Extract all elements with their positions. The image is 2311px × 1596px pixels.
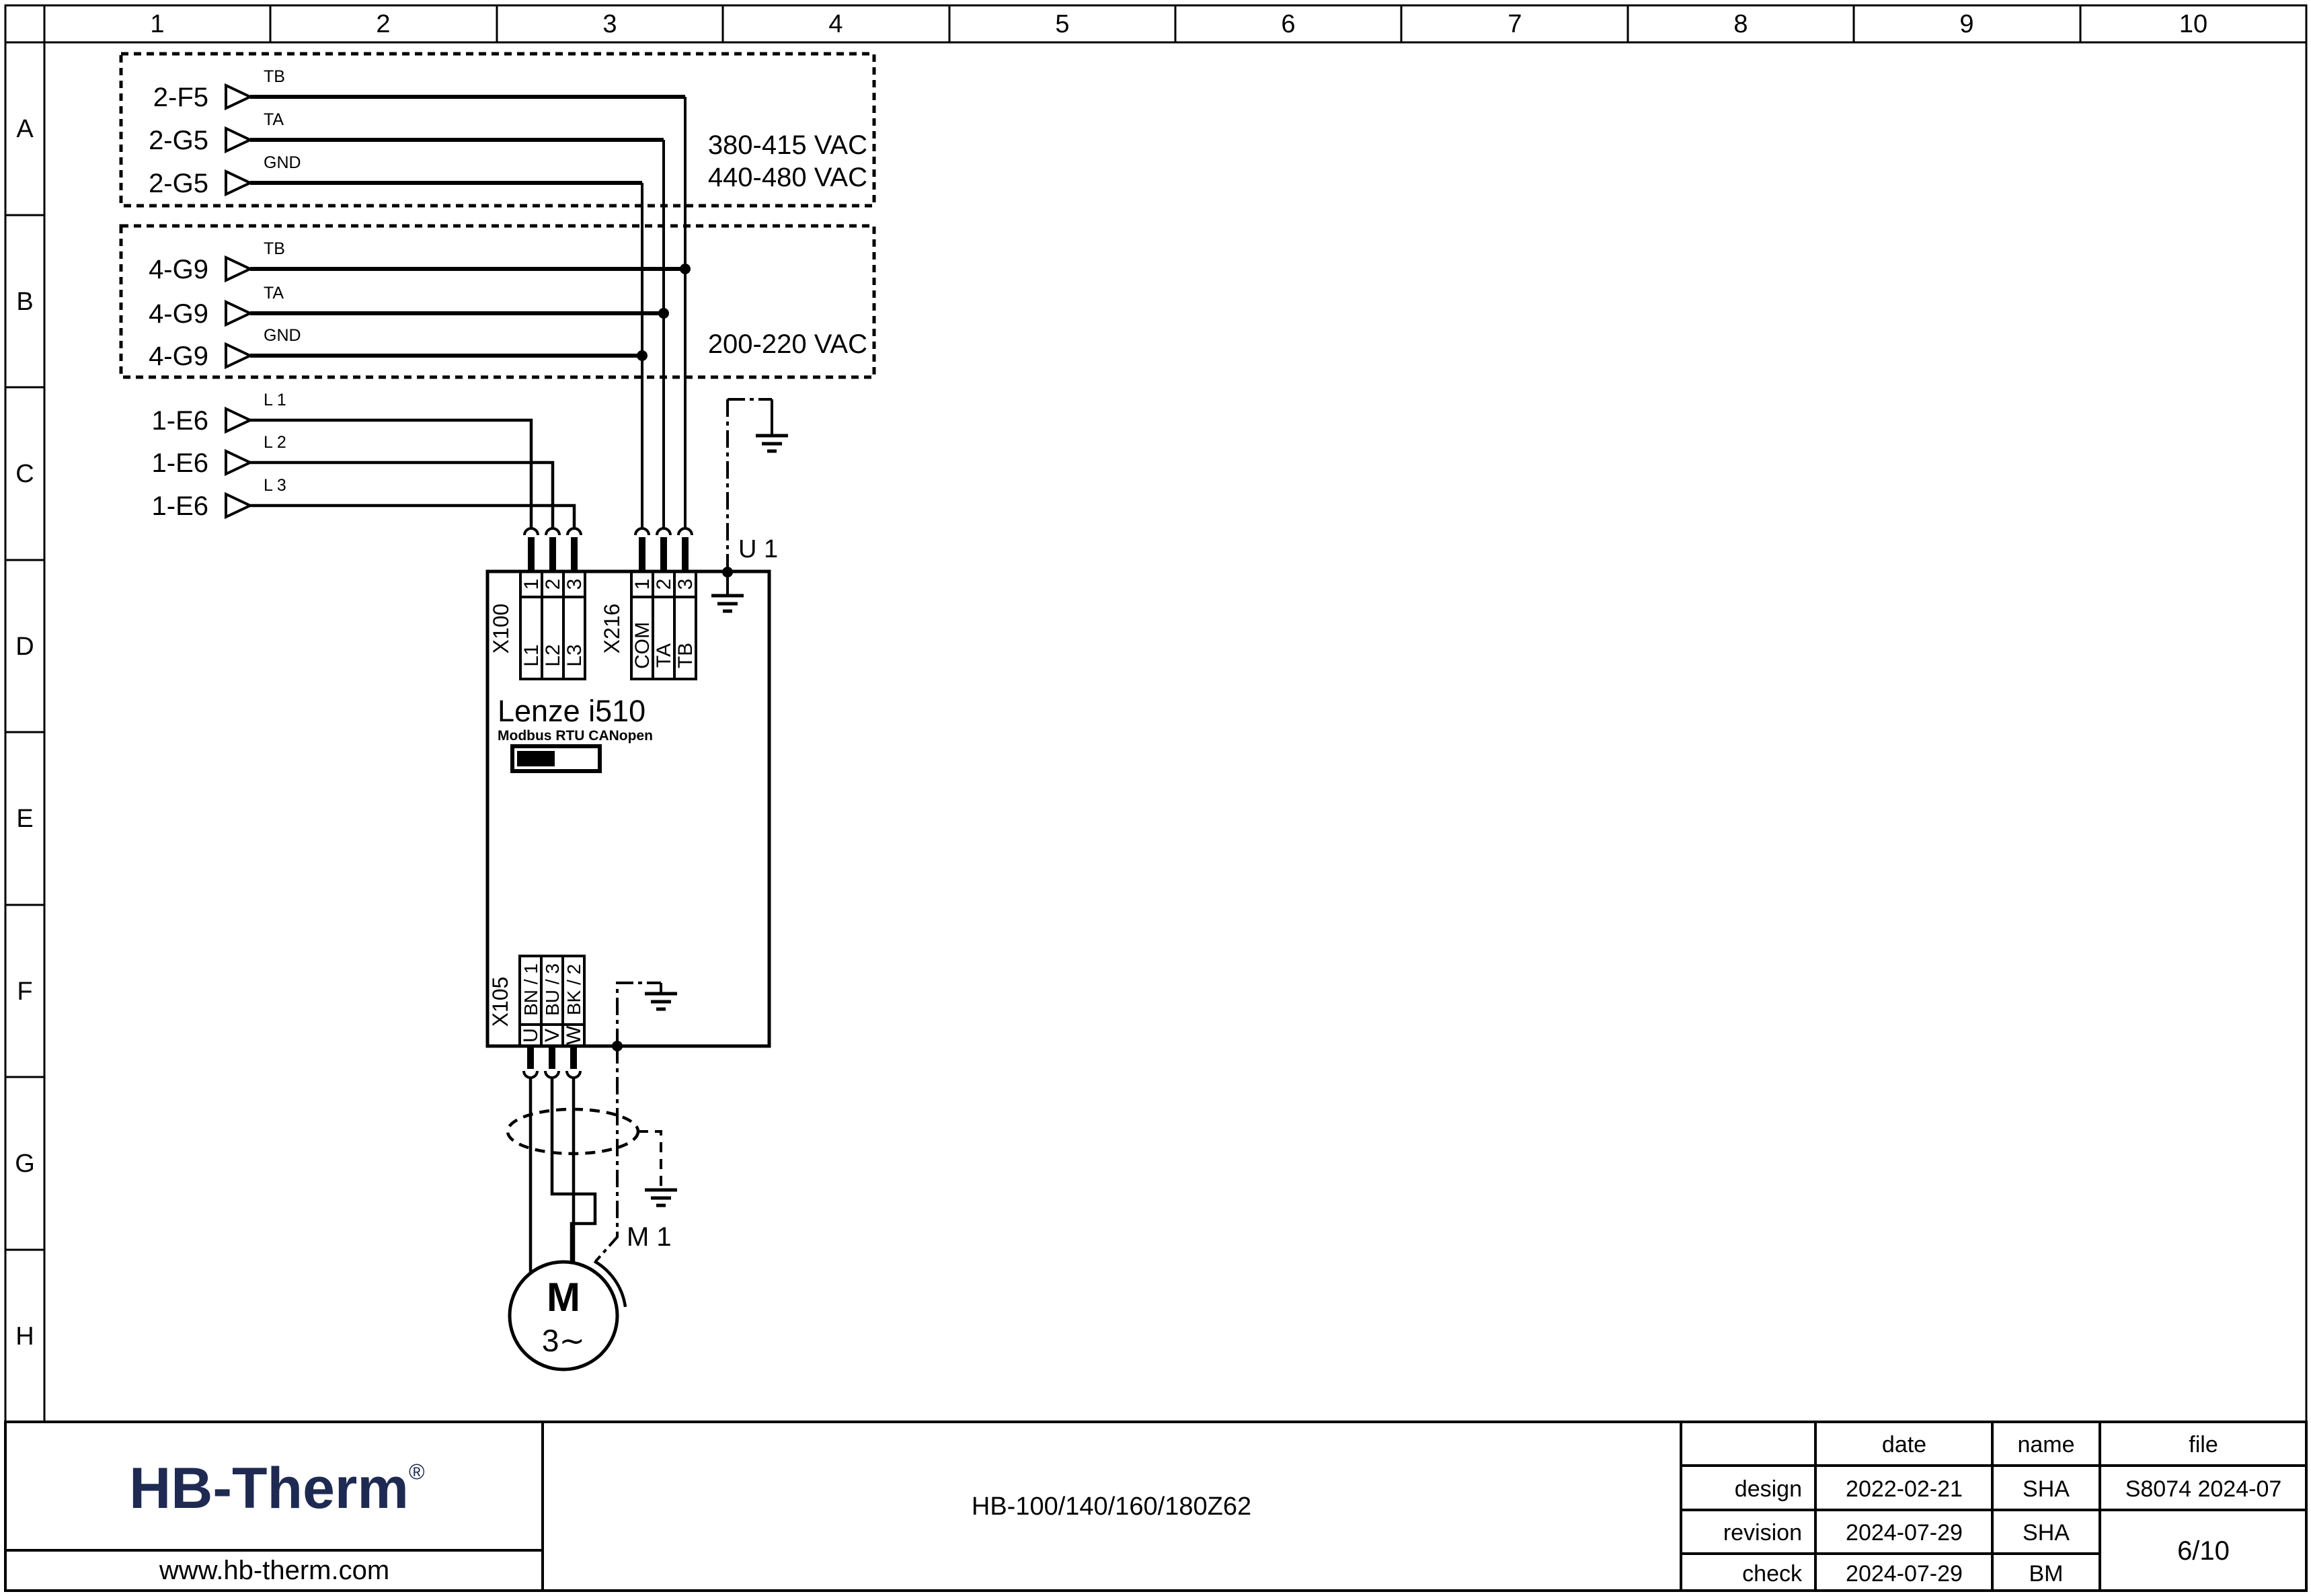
ruler-row: H <box>15 1322 34 1351</box>
voltage-label: 440-480 VAC <box>708 163 867 192</box>
signal-arrow-icon <box>226 171 250 194</box>
pin-number: 1 <box>631 579 654 590</box>
pin-label: TB <box>674 643 697 668</box>
signal-arrow-icon <box>226 128 250 151</box>
motor-designator: M 1 <box>627 1222 672 1252</box>
company-logo: HB-Therm ® <box>129 1456 425 1521</box>
schematic-page: 1 2 3 4 5 6 7 8 9 10 A B C D E F G H 2-F… <box>0 0 2311 1596</box>
connector-name: X105 <box>488 977 512 1027</box>
voltage-label: 200-220 VAC <box>708 329 867 359</box>
signal-label: L 1 <box>264 391 286 409</box>
check-name: BM <box>2029 1561 2064 1587</box>
motor-letter: M <box>547 1275 580 1320</box>
ruler-row: F <box>17 977 32 1006</box>
wire-ref: 4-G9 <box>149 255 208 284</box>
ruler-col: 6 <box>1281 10 1295 38</box>
ruler-row: A <box>16 115 34 143</box>
plug-socket-icon <box>524 1071 537 1078</box>
pin-number: V <box>541 1029 563 1042</box>
page-number: 6/10 <box>2177 1536 2230 1566</box>
drive-designator: U 1 <box>738 535 778 563</box>
signal-label: L 3 <box>264 476 286 495</box>
connector-name: X100 <box>489 604 513 654</box>
pe-dashdot-line <box>596 1046 617 1261</box>
ground-icon <box>645 1190 677 1205</box>
plug-socket-icon <box>524 528 538 535</box>
pin-number: 3 <box>674 579 697 590</box>
plug-socket-icon <box>657 528 670 535</box>
plug-socket-icon <box>545 1071 559 1078</box>
ruler-col: 4 <box>828 10 843 38</box>
pin-label: L3 <box>563 644 586 666</box>
signal-label: TB <box>264 67 285 86</box>
col-header-date: date <box>1882 1432 1926 1458</box>
pin-label: BK / 2 <box>563 964 584 1015</box>
plug-socket-icon <box>546 528 559 535</box>
pin-number: 2 <box>653 579 675 590</box>
drawing-title: HB-100/140/160/180Z62 <box>972 1492 1251 1521</box>
signal-arrow-icon <box>226 344 250 367</box>
ruler-row: C <box>15 460 34 488</box>
signal-arrow-icon <box>226 494 250 517</box>
ruler-labels: 1 2 3 4 5 6 7 8 9 10 A B C D E F G H <box>15 10 2207 1351</box>
wire-l2 <box>250 463 553 529</box>
wire-ref: 2-G5 <box>149 169 208 198</box>
connector-name: X216 <box>600 604 624 654</box>
signal-label: TB <box>264 239 285 258</box>
motor-m1: M 3∼ M 1 <box>510 1222 672 1369</box>
ruler-row: G <box>15 1150 35 1178</box>
wire-ref: 1-E6 <box>152 491 209 521</box>
pin-number: U <box>520 1028 542 1043</box>
signal-arrow-icon <box>226 257 250 280</box>
wire-ref: 2-F5 <box>153 83 208 112</box>
drive-model: Lenze i510 <box>498 694 645 728</box>
ruler-col: 7 <box>1507 10 1522 38</box>
signal-label: TA <box>264 110 284 129</box>
pin-label: COM <box>631 622 654 669</box>
frame <box>5 5 2306 1591</box>
ruler-row: E <box>16 805 33 833</box>
design-name: SHA <box>2023 1476 2070 1502</box>
pin-label: L2 <box>542 644 564 666</box>
revision-date: 2024-07-29 <box>1846 1520 1963 1546</box>
signal-label: TA <box>264 284 284 303</box>
plug-socket-icon <box>567 1071 580 1078</box>
pin-number: 3 <box>563 579 586 590</box>
row-label: design <box>1735 1476 1802 1502</box>
pin-label: BN / 1 <box>520 963 541 1016</box>
row-label: revision <box>1723 1520 1802 1546</box>
pin-label: L1 <box>520 644 543 666</box>
outer-border <box>5 5 2306 1591</box>
signal-arrow-icon <box>226 451 250 474</box>
ruler-col: 8 <box>1733 10 1748 38</box>
source-box-b: 4-G9 4-G9 4-G9 TB TA GND 200-220 VAC <box>121 226 874 377</box>
mains-input: 1-E6 1-E6 1-E6 L 1 L 2 L 3 <box>152 391 575 529</box>
bottom-plug-contacts <box>524 1046 580 1078</box>
wire-ref: 2-G5 <box>149 126 208 155</box>
motor-phases: 3∼ <box>542 1323 585 1358</box>
plug-socket-icon <box>567 528 581 535</box>
ruler-col: 2 <box>376 10 390 38</box>
ruler-col: 9 <box>1959 10 1973 38</box>
ruler-col: 1 <box>150 10 164 38</box>
design-date: 2022-02-21 <box>1846 1476 1963 1502</box>
top-plug-contacts <box>524 528 692 571</box>
pin-number: 2 <box>542 579 564 590</box>
revision-name: SHA <box>2023 1520 2070 1546</box>
drive-u1: U 1 X100 1 2 3 L1 L2 L3 <box>487 535 778 1051</box>
plug-socket-icon <box>678 528 692 535</box>
switch-knob <box>517 751 555 766</box>
ground-icon <box>756 436 788 451</box>
pin-number: 1 <box>520 579 543 590</box>
col-header-name: name <box>2017 1432 2074 1458</box>
signal-arrow-icon <box>226 302 250 325</box>
signal-label: L 2 <box>264 433 286 452</box>
ruler-col: 3 <box>602 10 617 38</box>
registered-mark-icon: ® <box>409 1460 425 1484</box>
wire-ref: 1-E6 <box>152 448 209 478</box>
signal-arrow-icon <box>226 85 250 108</box>
signal-label: GND <box>264 326 301 345</box>
wire-ref: 4-G9 <box>149 342 208 371</box>
ruler-col: 5 <box>1055 10 1069 38</box>
wire-l1 <box>250 420 531 529</box>
col-header-file: file <box>2189 1432 2218 1458</box>
source-box-a: 2-F5 2-G5 2-G5 TB TA GND 380-415 VAC 440… <box>121 54 874 206</box>
row-label: check <box>1742 1561 1803 1587</box>
logo-text: HB-Therm <box>129 1456 409 1521</box>
comm-switch-label: Modbus RTU CANopen <box>498 728 653 744</box>
file-value: S8074 2024-07 <box>2125 1476 2282 1502</box>
ruler-row: D <box>15 633 34 661</box>
ruler-col: 10 <box>2179 10 2207 38</box>
wire-ref: 1-E6 <box>152 406 209 436</box>
shield-drain <box>638 1131 661 1190</box>
voltage-label: 380-415 VAC <box>708 130 867 160</box>
signal-label: GND <box>264 153 301 172</box>
title-block: HB-Therm ® www.hb-therm.com HB-100/140/1… <box>5 1422 2306 1591</box>
check-date: 2024-07-29 <box>1846 1561 1963 1587</box>
pin-label: TA <box>653 643 675 668</box>
plug-socket-icon <box>635 528 649 535</box>
pin-label: BU / 3 <box>542 963 563 1016</box>
comm-switch <box>512 746 600 771</box>
website-link: www.hb-therm.com <box>159 1556 389 1585</box>
wire-l3 <box>250 506 574 529</box>
signal-arrow-icon <box>226 409 250 432</box>
pin-number: W <box>563 1025 585 1045</box>
ruler-row: B <box>16 288 33 316</box>
wire-ref: 4-G9 <box>149 299 208 329</box>
